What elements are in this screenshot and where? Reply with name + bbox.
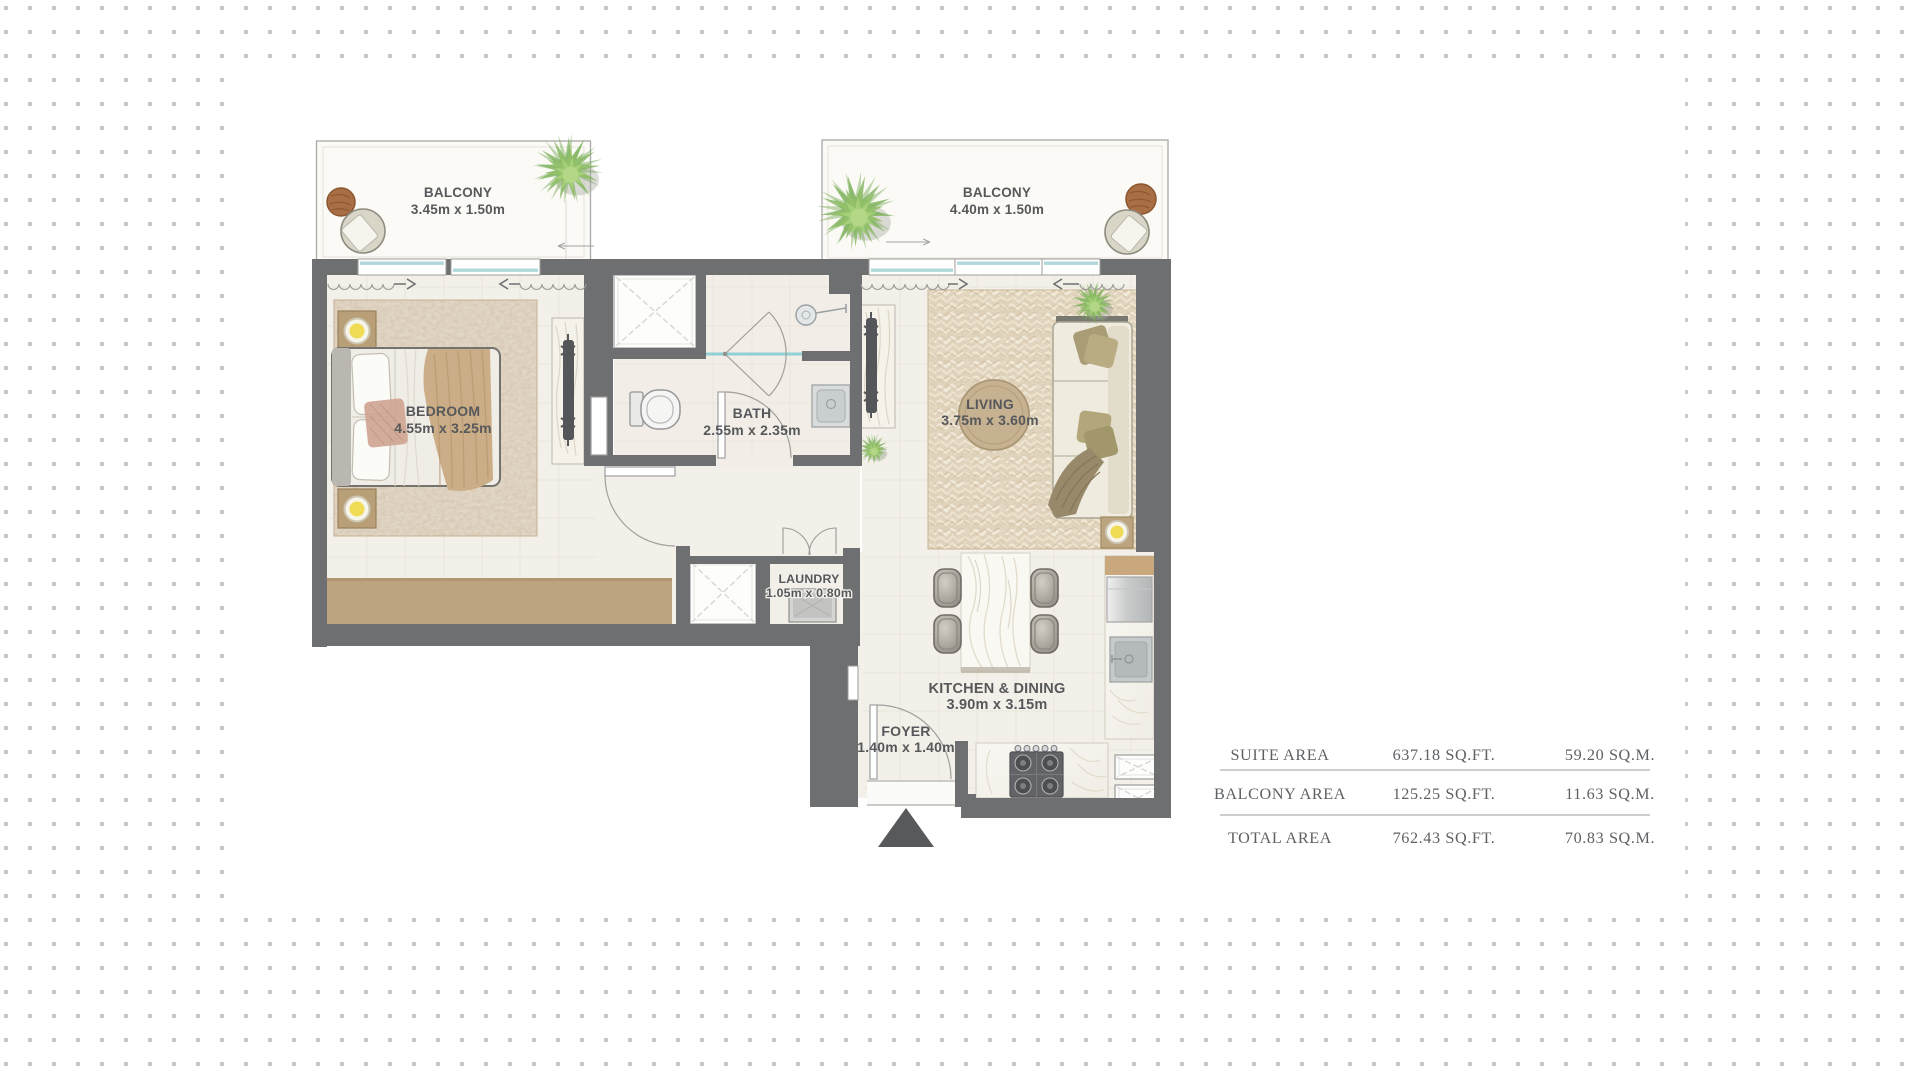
svg-text:SUITE AREA: SUITE AREA — [1230, 746, 1329, 764]
svg-text:11.63 SQ.M.: 11.63 SQ.M. — [1565, 785, 1655, 803]
svg-text:3.45m x 1.50m: 3.45m x 1.50m — [411, 202, 505, 217]
svg-text:KITCHEN & DINING: KITCHEN & DINING — [929, 681, 1066, 697]
svg-text:BALCONY AREA: BALCONY AREA — [1214, 785, 1346, 803]
svg-text:BEDROOM: BEDROOM — [406, 403, 481, 419]
svg-text:LIVING: LIVING — [966, 396, 1014, 412]
svg-text:637.18 SQ.FT.: 637.18 SQ.FT. — [1393, 746, 1496, 764]
svg-text:4.40m x 1.50m: 4.40m x 1.50m — [950, 202, 1044, 217]
svg-text:125.25 SQ.FT.: 125.25 SQ.FT. — [1393, 785, 1496, 803]
svg-text:70.83 SQ.M.: 70.83 SQ.M. — [1565, 829, 1655, 847]
svg-text:LAUNDRY: LAUNDRY — [778, 572, 839, 586]
svg-text:4.55m x 3.25m: 4.55m x 3.25m — [394, 420, 492, 436]
svg-text:1.05m x 0.80m: 1.05m x 0.80m — [766, 586, 852, 600]
svg-text:BALCONY: BALCONY — [963, 185, 1031, 200]
svg-text:3.90m x 3.15m: 3.90m x 3.15m — [947, 697, 1048, 713]
svg-text:1.40m x 1.40m: 1.40m x 1.40m — [857, 739, 955, 755]
svg-text:59.20 SQ.M.: 59.20 SQ.M. — [1565, 746, 1655, 764]
svg-text:762.43 SQ.FT.: 762.43 SQ.FT. — [1393, 829, 1496, 847]
svg-text:2.55m x 2.35m: 2.55m x 2.35m — [703, 422, 801, 438]
svg-text:3.75m x 3.60m: 3.75m x 3.60m — [941, 412, 1039, 428]
svg-text:BALCONY: BALCONY — [424, 185, 492, 200]
svg-text:BATH: BATH — [733, 405, 772, 421]
svg-text:TOTAL AREA: TOTAL AREA — [1228, 829, 1332, 847]
svg-text:FOYER: FOYER — [881, 723, 930, 739]
